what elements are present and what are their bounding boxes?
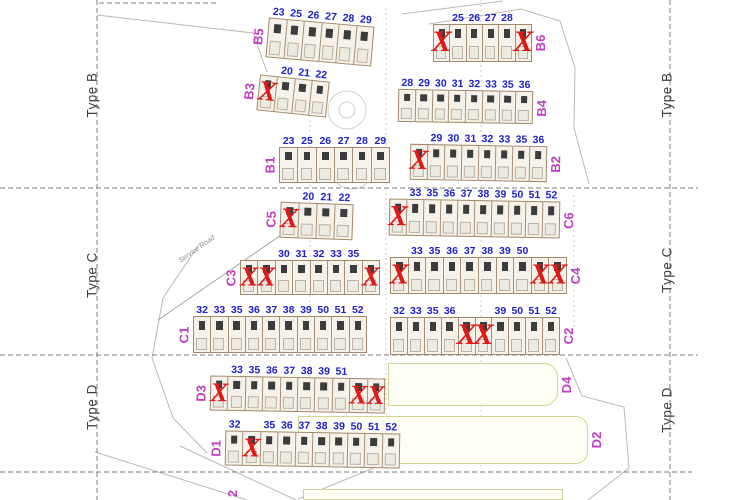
unit-number: 35 (427, 305, 439, 317)
unit-39: 39 (297, 317, 314, 352)
unit-28: 28 (498, 25, 514, 61)
unit-number: 32 (196, 304, 208, 316)
sold-x-mark: X (242, 434, 260, 461)
unit-number: 52 (385, 421, 397, 433)
unit-22: 22 (308, 81, 329, 117)
unit-number: 33 (498, 133, 510, 145)
unit-37: 37 (262, 317, 279, 352)
unit-number: 52 (352, 304, 364, 316)
unit-number: 29 (360, 13, 373, 26)
unit-29: 29 (414, 90, 431, 121)
unit-number: 32 (313, 248, 325, 260)
block-label-d2: D2 (590, 432, 605, 449)
unit-31: 31 (292, 261, 309, 294)
unit-sold: X (366, 379, 384, 412)
unit-sold: X (257, 76, 277, 112)
unit-35: 35 (228, 317, 245, 352)
unit-number: 28 (501, 12, 513, 24)
sold-x-mark: X (530, 260, 549, 289)
unit-sold: X (362, 261, 379, 294)
unit-32: 32 (310, 261, 327, 294)
unit-51: 51 (525, 202, 543, 237)
block-label-b3: B3 (241, 82, 258, 100)
unit-number: 38 (301, 365, 313, 377)
unit-number: 35 (248, 364, 260, 376)
unit-51: 51 (332, 379, 350, 412)
sold-x-mark: X (513, 27, 533, 57)
unit-number: 36 (446, 245, 458, 257)
block-label-d1: D1 (208, 439, 223, 456)
unit-35: 35 (260, 432, 278, 465)
block-label-b5: B5 (250, 28, 266, 46)
unit-number: 32 (468, 78, 480, 90)
sold-x-mark: X (258, 263, 276, 290)
unit-27: 27 (334, 148, 352, 182)
building-block-c5: C5X202122 (279, 202, 353, 241)
unit-number: 23 (283, 135, 295, 147)
block-label-c2: C2 (562, 328, 577, 345)
unit-35: 35 (425, 258, 443, 293)
unit-number: 33 (410, 305, 422, 317)
unit-36: 36 (443, 258, 461, 293)
unit-number: 37 (283, 365, 295, 377)
unit-number: 33 (409, 187, 421, 199)
building-block-c1: C132333536373839505152 (193, 316, 367, 353)
unit-33: 33 (406, 200, 424, 235)
unit-51: 51 (525, 318, 542, 354)
unit-number: 37 (464, 245, 476, 257)
unit-38: 38 (312, 433, 330, 466)
unit-number: 25 (290, 7, 303, 20)
unit-number: 35 (429, 245, 441, 257)
unit-number: 35 (348, 248, 360, 260)
unit-number: 39 (318, 365, 330, 377)
unit-number: 36 (266, 364, 278, 376)
unit-37: 37 (460, 258, 478, 293)
unit-number: 29 (430, 132, 442, 144)
unit-32: 32 (465, 91, 482, 122)
unit-31: 31 (448, 91, 465, 122)
unit-number: 33 (330, 248, 342, 260)
unit-number: 27 (338, 135, 350, 147)
unit-number: 38 (316, 420, 328, 432)
building-block-c2: C232333536XX39505152 (390, 317, 560, 355)
unit-number: 22 (338, 192, 350, 204)
block-label-b1: B1 (263, 157, 278, 174)
unit-number: 26 (307, 9, 320, 22)
unit-number: 21 (320, 191, 332, 203)
unit-39: 39 (491, 318, 508, 354)
unit-35: 35 (498, 92, 515, 123)
unit-39: 39 (314, 378, 332, 411)
unit-number: 36 (248, 304, 260, 316)
unit-28: 28 (352, 148, 370, 182)
sold-x-mark: X (390, 260, 409, 289)
unit-23: 23 (280, 148, 297, 182)
unit-30: 30 (444, 145, 462, 179)
unit-number: 33 (231, 364, 243, 376)
sold-x-mark: X (388, 202, 408, 231)
sold-x-mark: X (367, 382, 385, 409)
sold-x-mark: X (210, 379, 228, 406)
unit-37: 37 (294, 433, 312, 466)
unit-number: 36 (443, 187, 455, 199)
block-label-c5: C5 (263, 211, 279, 228)
zone-label-type-b-right: Type B (660, 72, 675, 117)
unit-number: 31 (295, 248, 307, 260)
unit-number: 30 (435, 77, 447, 89)
unit-29: 29 (427, 145, 445, 179)
unit-number: 31 (452, 78, 464, 90)
unit-52: 52 (381, 434, 399, 467)
unit-number: 50 (511, 305, 523, 317)
unit-number: 20 (280, 65, 293, 78)
unit-33: 33 (495, 146, 513, 180)
unit-26: 26 (316, 148, 334, 182)
unit-number: 51 (368, 421, 380, 433)
unit-sold: X (458, 318, 475, 354)
sold-x-mark: X (548, 260, 567, 289)
unit-32: 32 (478, 146, 496, 180)
unit-21: 21 (315, 204, 334, 239)
unit-number: 35 (231, 304, 243, 316)
unit-36: 36 (262, 377, 280, 410)
sold-x-mark: X (409, 147, 428, 175)
unit-36: 36 (515, 92, 532, 123)
sold-x-mark: X (362, 263, 380, 290)
unit-33: 33 (227, 377, 245, 410)
unit-36: 36 (245, 317, 262, 352)
unit-37: 37 (457, 201, 475, 236)
unit-number: 51 (528, 305, 540, 317)
unit-50: 50 (508, 318, 525, 354)
unit-36: 36 (440, 200, 458, 235)
unit-33: 33 (327, 261, 344, 294)
unit-number: 39 (494, 188, 506, 200)
unit-25: 25 (297, 148, 315, 182)
future-block-strip (303, 489, 563, 500)
unit-number: 39 (300, 304, 312, 316)
unit-35: 35 (512, 147, 530, 181)
unit-35: 35 (423, 200, 441, 235)
zone-label-type-b-left: Type B (85, 72, 100, 117)
unit-sold: X (531, 258, 549, 293)
unit-39: 39 (496, 258, 514, 293)
unit-sold: X (211, 376, 228, 409)
unit-number: 28 (342, 12, 355, 25)
unit-36: 36 (277, 432, 295, 465)
building-block-b2: B2X29303132333536 (410, 144, 548, 182)
unit-number: 27 (485, 12, 497, 24)
block-label-c4: C4 (569, 267, 584, 284)
unit-38: 38 (297, 378, 315, 411)
sold-x-mark: X (432, 27, 452, 57)
unit-sold: X (475, 318, 492, 354)
sold-x-mark: X (240, 263, 258, 290)
unit-sold: X (280, 203, 298, 238)
unit-number: 26 (468, 12, 480, 24)
future-block-d4: D4 (388, 363, 558, 406)
unit-33: 33 (481, 91, 498, 122)
unit-number: 37 (298, 420, 310, 432)
zone-label-type-d-left: Type D (85, 384, 100, 430)
unit-number: 38 (481, 245, 493, 257)
unit-50: 50 (513, 258, 531, 293)
unit-39: 39 (329, 433, 347, 466)
unit-32: 32 (226, 431, 243, 464)
partial-block-label: 2 (225, 490, 240, 497)
zone-label-type-d-right: Type D (660, 387, 675, 433)
unit-sold: X (515, 25, 531, 61)
unit-number: 39 (499, 245, 511, 257)
unit-number: 28 (356, 135, 368, 147)
building-block-c6: C6X333536373839505152 (389, 199, 561, 239)
unit-number: 30 (447, 132, 459, 144)
unit-36: 36 (529, 147, 547, 181)
block-label-c1: C1 (177, 326, 192, 343)
unit-sold: X (257, 261, 274, 294)
unit-50: 50 (508, 202, 526, 237)
unit-number: 50 (317, 304, 329, 316)
unit-38: 38 (478, 258, 496, 293)
unit-33: 33 (407, 318, 424, 354)
unit-25: 25 (449, 25, 465, 61)
building-block-c4: C4X33353637383950XX (390, 257, 567, 294)
unit-number: 29 (418, 77, 430, 89)
block-label-d3: D3 (193, 384, 208, 401)
zone-label-type-c-right: Type C (660, 247, 675, 293)
unit-33: 33 (210, 317, 227, 352)
sold-x-mark: X (280, 205, 300, 234)
unit-number: 20 (302, 191, 314, 203)
unit-sold: X (411, 145, 428, 179)
sold-x-mark: X (349, 381, 367, 408)
unit-number: 33 (485, 78, 497, 90)
unit-number: 25 (301, 135, 313, 147)
block-label-d4: D4 (560, 376, 575, 393)
unit-52: 52 (349, 317, 366, 352)
unit-36: 36 (441, 318, 458, 354)
unit-number: 36 (532, 134, 544, 146)
unit-number: 51 (336, 366, 348, 378)
building-block-c3: C3XX3031323335X (240, 260, 380, 295)
unit-number: 29 (374, 135, 386, 147)
unit-sold: X (241, 261, 257, 294)
unit-number: 52 (545, 305, 557, 317)
building-block-b1: B1232526272829 (279, 147, 390, 183)
unit-38: 38 (279, 317, 296, 352)
unit-33: 33 (408, 258, 426, 293)
unit-50: 50 (314, 317, 331, 352)
unit-35: 35 (245, 377, 263, 410)
unit-number: 21 (298, 66, 311, 79)
zone-label-type-c-left: Type C (85, 252, 100, 298)
unit-22: 22 (333, 205, 352, 240)
unit-52: 52 (542, 318, 559, 354)
unit-sold: X (242, 432, 260, 465)
unit-31: 31 (461, 146, 479, 180)
unit-number: 37 (265, 304, 277, 316)
unit-number: 33 (214, 304, 226, 316)
unit-38: 38 (474, 201, 492, 236)
building-block-b3: B3X202122 (256, 74, 329, 117)
unit-number: 50 (511, 189, 523, 201)
unit-number: 35 (502, 79, 514, 91)
unit-sold: X (349, 379, 367, 412)
unit-number: 39 (333, 420, 345, 432)
unit-51: 51 (331, 317, 348, 352)
unit-27: 27 (482, 25, 498, 61)
unit-number: 50 (517, 245, 529, 257)
unit-20: 20 (297, 203, 316, 238)
unit-32: 32 (194, 317, 210, 352)
unit-number: 30 (278, 248, 290, 260)
unit-50: 50 (347, 434, 365, 467)
unit-26: 26 (466, 25, 482, 61)
unit-number: 35 (515, 134, 527, 146)
block-label-b2: B2 (548, 156, 563, 173)
unit-sold: X (434, 25, 449, 61)
unit-number: 51 (335, 304, 347, 316)
unit-number: 37 (460, 188, 472, 200)
unit-39: 39 (491, 201, 509, 236)
block-label-b4: B4 (534, 99, 549, 116)
unit-number: 31 (464, 133, 476, 145)
unit-number: 22 (315, 68, 328, 81)
sold-x-mark: X (257, 78, 279, 108)
sold-x-mark: X (473, 320, 493, 350)
unit-number: 51 (528, 189, 540, 201)
unit-30: 30 (275, 261, 292, 294)
unit-52: 52 (542, 202, 560, 237)
unit-35: 35 (424, 318, 441, 354)
unit-35: 35 (344, 261, 361, 294)
unit-number: 35 (263, 419, 275, 431)
unit-number: 38 (477, 188, 489, 200)
unit-number: 39 (495, 305, 507, 317)
unit-number: 32 (481, 133, 493, 145)
building-block-b4: B42829303132333536 (398, 89, 534, 124)
unit-sold: X (391, 258, 408, 293)
unit-29: 29 (371, 148, 389, 182)
unit-sold: X (548, 258, 566, 293)
unit-37: 37 (279, 378, 297, 411)
building-block-d3: D3X33353637383951XX (210, 375, 386, 413)
unit-sold: X (390, 200, 407, 235)
unit-number: 38 (283, 304, 295, 316)
unit-number: 28 (401, 77, 413, 89)
unit-number: 32 (229, 419, 241, 431)
unit-32: 32 (391, 318, 407, 354)
unit-28: 28 (399, 90, 415, 121)
block-label-c3: C3 (224, 269, 239, 286)
block-label-b6: B6 (534, 35, 549, 52)
unit-number: 36 (444, 305, 456, 317)
unit-number: 35 (426, 187, 438, 199)
unit-number: 36 (281, 419, 293, 431)
unit-number: 23 (272, 6, 285, 19)
site-plan: Type BType CType DType BType CType D D4D… (0, 0, 750, 500)
unit-number: 26 (319, 135, 331, 147)
unit-number: 25 (452, 12, 464, 24)
unit-51: 51 (364, 434, 382, 467)
unit-number: 27 (325, 10, 338, 23)
unit-number: 52 (545, 189, 557, 201)
unit-number: 32 (393, 305, 405, 317)
block-label-c6: C6 (561, 212, 576, 229)
unit-29: 29 (353, 26, 374, 65)
unit-number: 50 (351, 421, 363, 433)
unit-number: 33 (411, 245, 423, 257)
building-block-b6: B6X25262728X (433, 24, 532, 62)
unit-number: 36 (519, 79, 531, 91)
building-block-d1: D132X3536373839505152 (225, 430, 401, 468)
unit-30: 30 (431, 90, 448, 121)
